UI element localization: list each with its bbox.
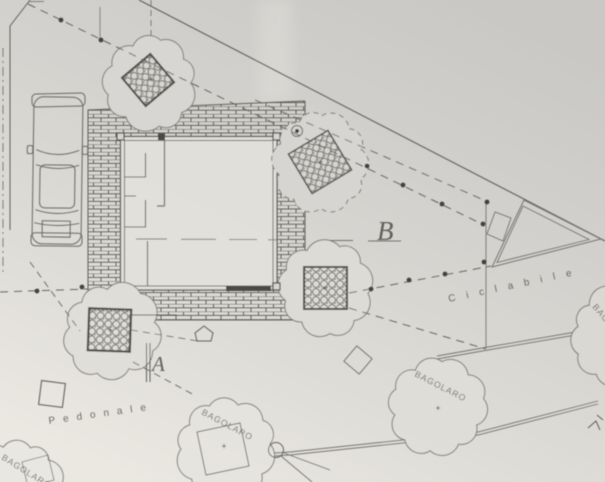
svg-text:B: B bbox=[377, 216, 394, 246]
svg-text:A: A bbox=[150, 352, 165, 376]
